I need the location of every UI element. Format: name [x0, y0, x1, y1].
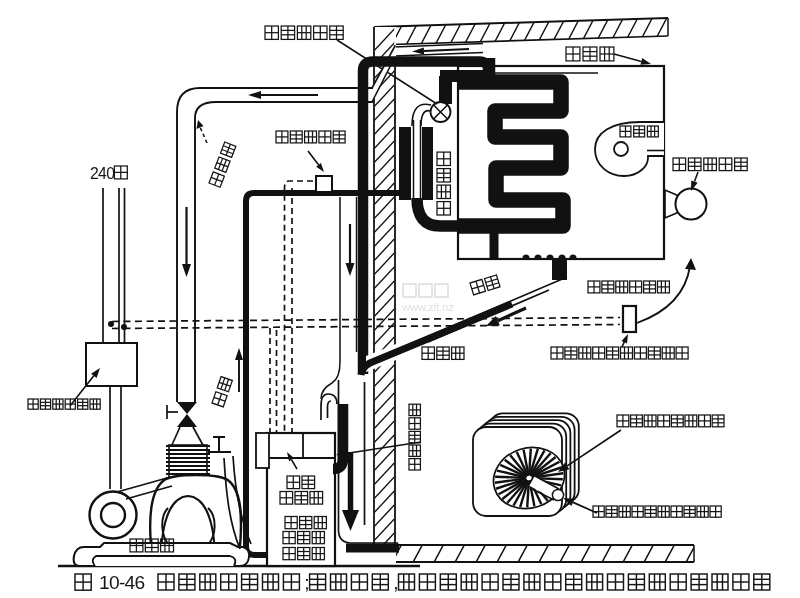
svg-text:,: , — [393, 572, 398, 593]
svg-text:;: ; — [304, 572, 309, 593]
svg-text:www.zlt.nz: www.zlt.nz — [401, 301, 454, 313]
svg-text:6: 6 — [134, 572, 145, 593]
